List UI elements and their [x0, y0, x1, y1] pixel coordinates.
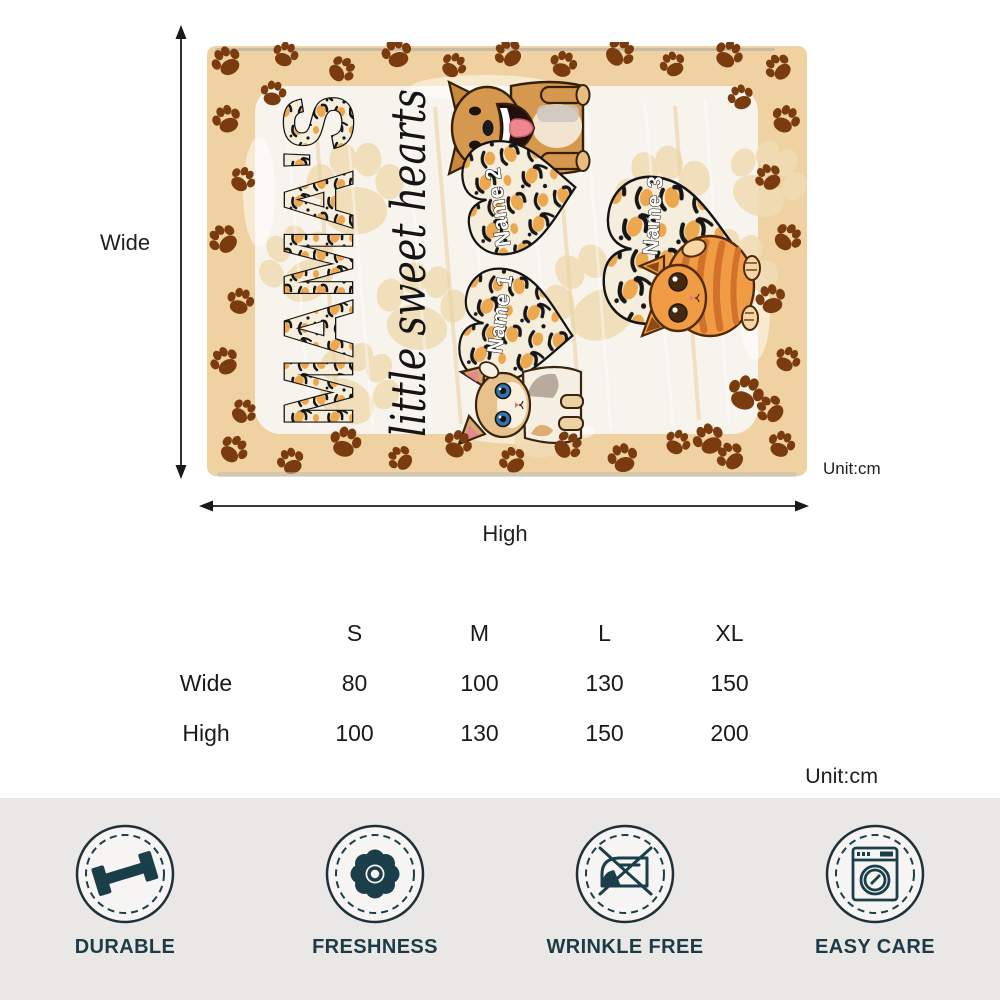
feature-label: EASY CARE	[815, 936, 935, 959]
table-value: 150	[667, 658, 792, 708]
flower-icon	[323, 822, 427, 926]
table-value: 150	[542, 708, 667, 758]
feature-label: FRESHNESS	[312, 936, 438, 959]
row-label-wide: Wide	[120, 658, 292, 708]
blanket-subtitle: little sweet hearts	[381, 89, 437, 437]
size-table: S M L XL Wide 80 100 130 150 High 100 13…	[120, 608, 792, 758]
unit-label-diagram: Unit:cm	[823, 459, 881, 479]
wide-label: Wide	[88, 230, 162, 256]
high-label: High	[468, 521, 542, 547]
dumbbell-icon	[73, 822, 177, 926]
table-value: 100	[417, 658, 542, 708]
feature-freshness: FRESHNESS	[250, 798, 500, 1000]
feature-durable: DURABLE	[0, 798, 250, 1000]
feature-bar: DURABLE FRESHNESS	[0, 798, 1000, 1000]
washing-machine-icon	[823, 822, 927, 926]
feature-label: DURABLE	[75, 936, 176, 959]
size-column-header: XL	[667, 608, 792, 658]
no-iron-icon	[573, 822, 677, 926]
table-value: 100	[292, 708, 417, 758]
table-value: 130	[417, 708, 542, 758]
size-column-header: L	[542, 608, 667, 658]
size-column-header: S	[292, 608, 417, 658]
feature-label: WRINKLE FREE	[546, 936, 703, 959]
table-value: 80	[292, 658, 417, 708]
product-size-infographic: MAMA'S little sweet hearts	[0, 0, 1000, 1000]
feature-wrinkle-free: WRINKLE FREE	[500, 798, 750, 1000]
feature-easy-care: EASY CARE	[750, 798, 1000, 1000]
blanket-art: MAMA'S little sweet hearts	[205, 42, 810, 480]
blanket-image: MAMA'S little sweet hearts	[205, 42, 810, 480]
row-label-high: High	[120, 708, 292, 758]
table-corner-cell	[120, 608, 292, 658]
unit-label-table: Unit:cm	[756, 764, 878, 789]
wide-dimension-arrow	[172, 24, 190, 480]
blanket-title: MAMA'S	[264, 95, 373, 427]
size-column-header: M	[417, 608, 542, 658]
high-dimension-arrow	[198, 496, 810, 516]
table-value: 130	[542, 658, 667, 708]
table-value: 200	[667, 708, 792, 758]
